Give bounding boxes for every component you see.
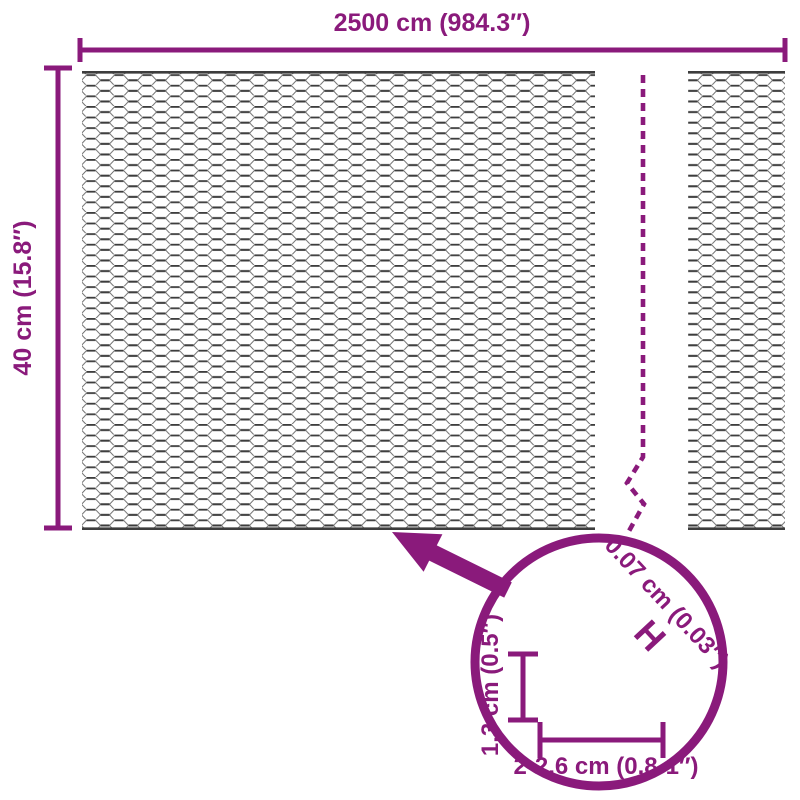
diagram-canvas: 2500 cm (984.3″) 40 cm (15.8″) 1,3 cm (0…	[0, 0, 800, 800]
zoom-circle-ring	[475, 538, 723, 786]
mesh-panel-right	[688, 71, 785, 530]
zoom-arrow-icon	[392, 532, 512, 598]
cell-width-label: 2-2,6 cm (0.8-1″)	[514, 753, 699, 780]
mesh-panel-main	[82, 71, 595, 530]
length-break-line	[627, 75, 644, 531]
mesh-fill-main	[82, 71, 595, 530]
product-dimension-diagram: 2500 cm (984.3″) 40 cm (15.8″) 1,3 cm (0…	[0, 0, 800, 800]
total-width-label: 2500 cm (984.3″)	[334, 9, 531, 37]
total-width-dimension: 2500 cm (984.3″)	[80, 9, 785, 62]
cell-height-label: 1,3 cm (0.5″)	[477, 614, 504, 756]
mesh-fill-right	[688, 71, 785, 530]
total-height-label: 40 cm (15.8″)	[9, 220, 37, 375]
total-height-dimension: 40 cm (15.8″)	[9, 68, 72, 528]
